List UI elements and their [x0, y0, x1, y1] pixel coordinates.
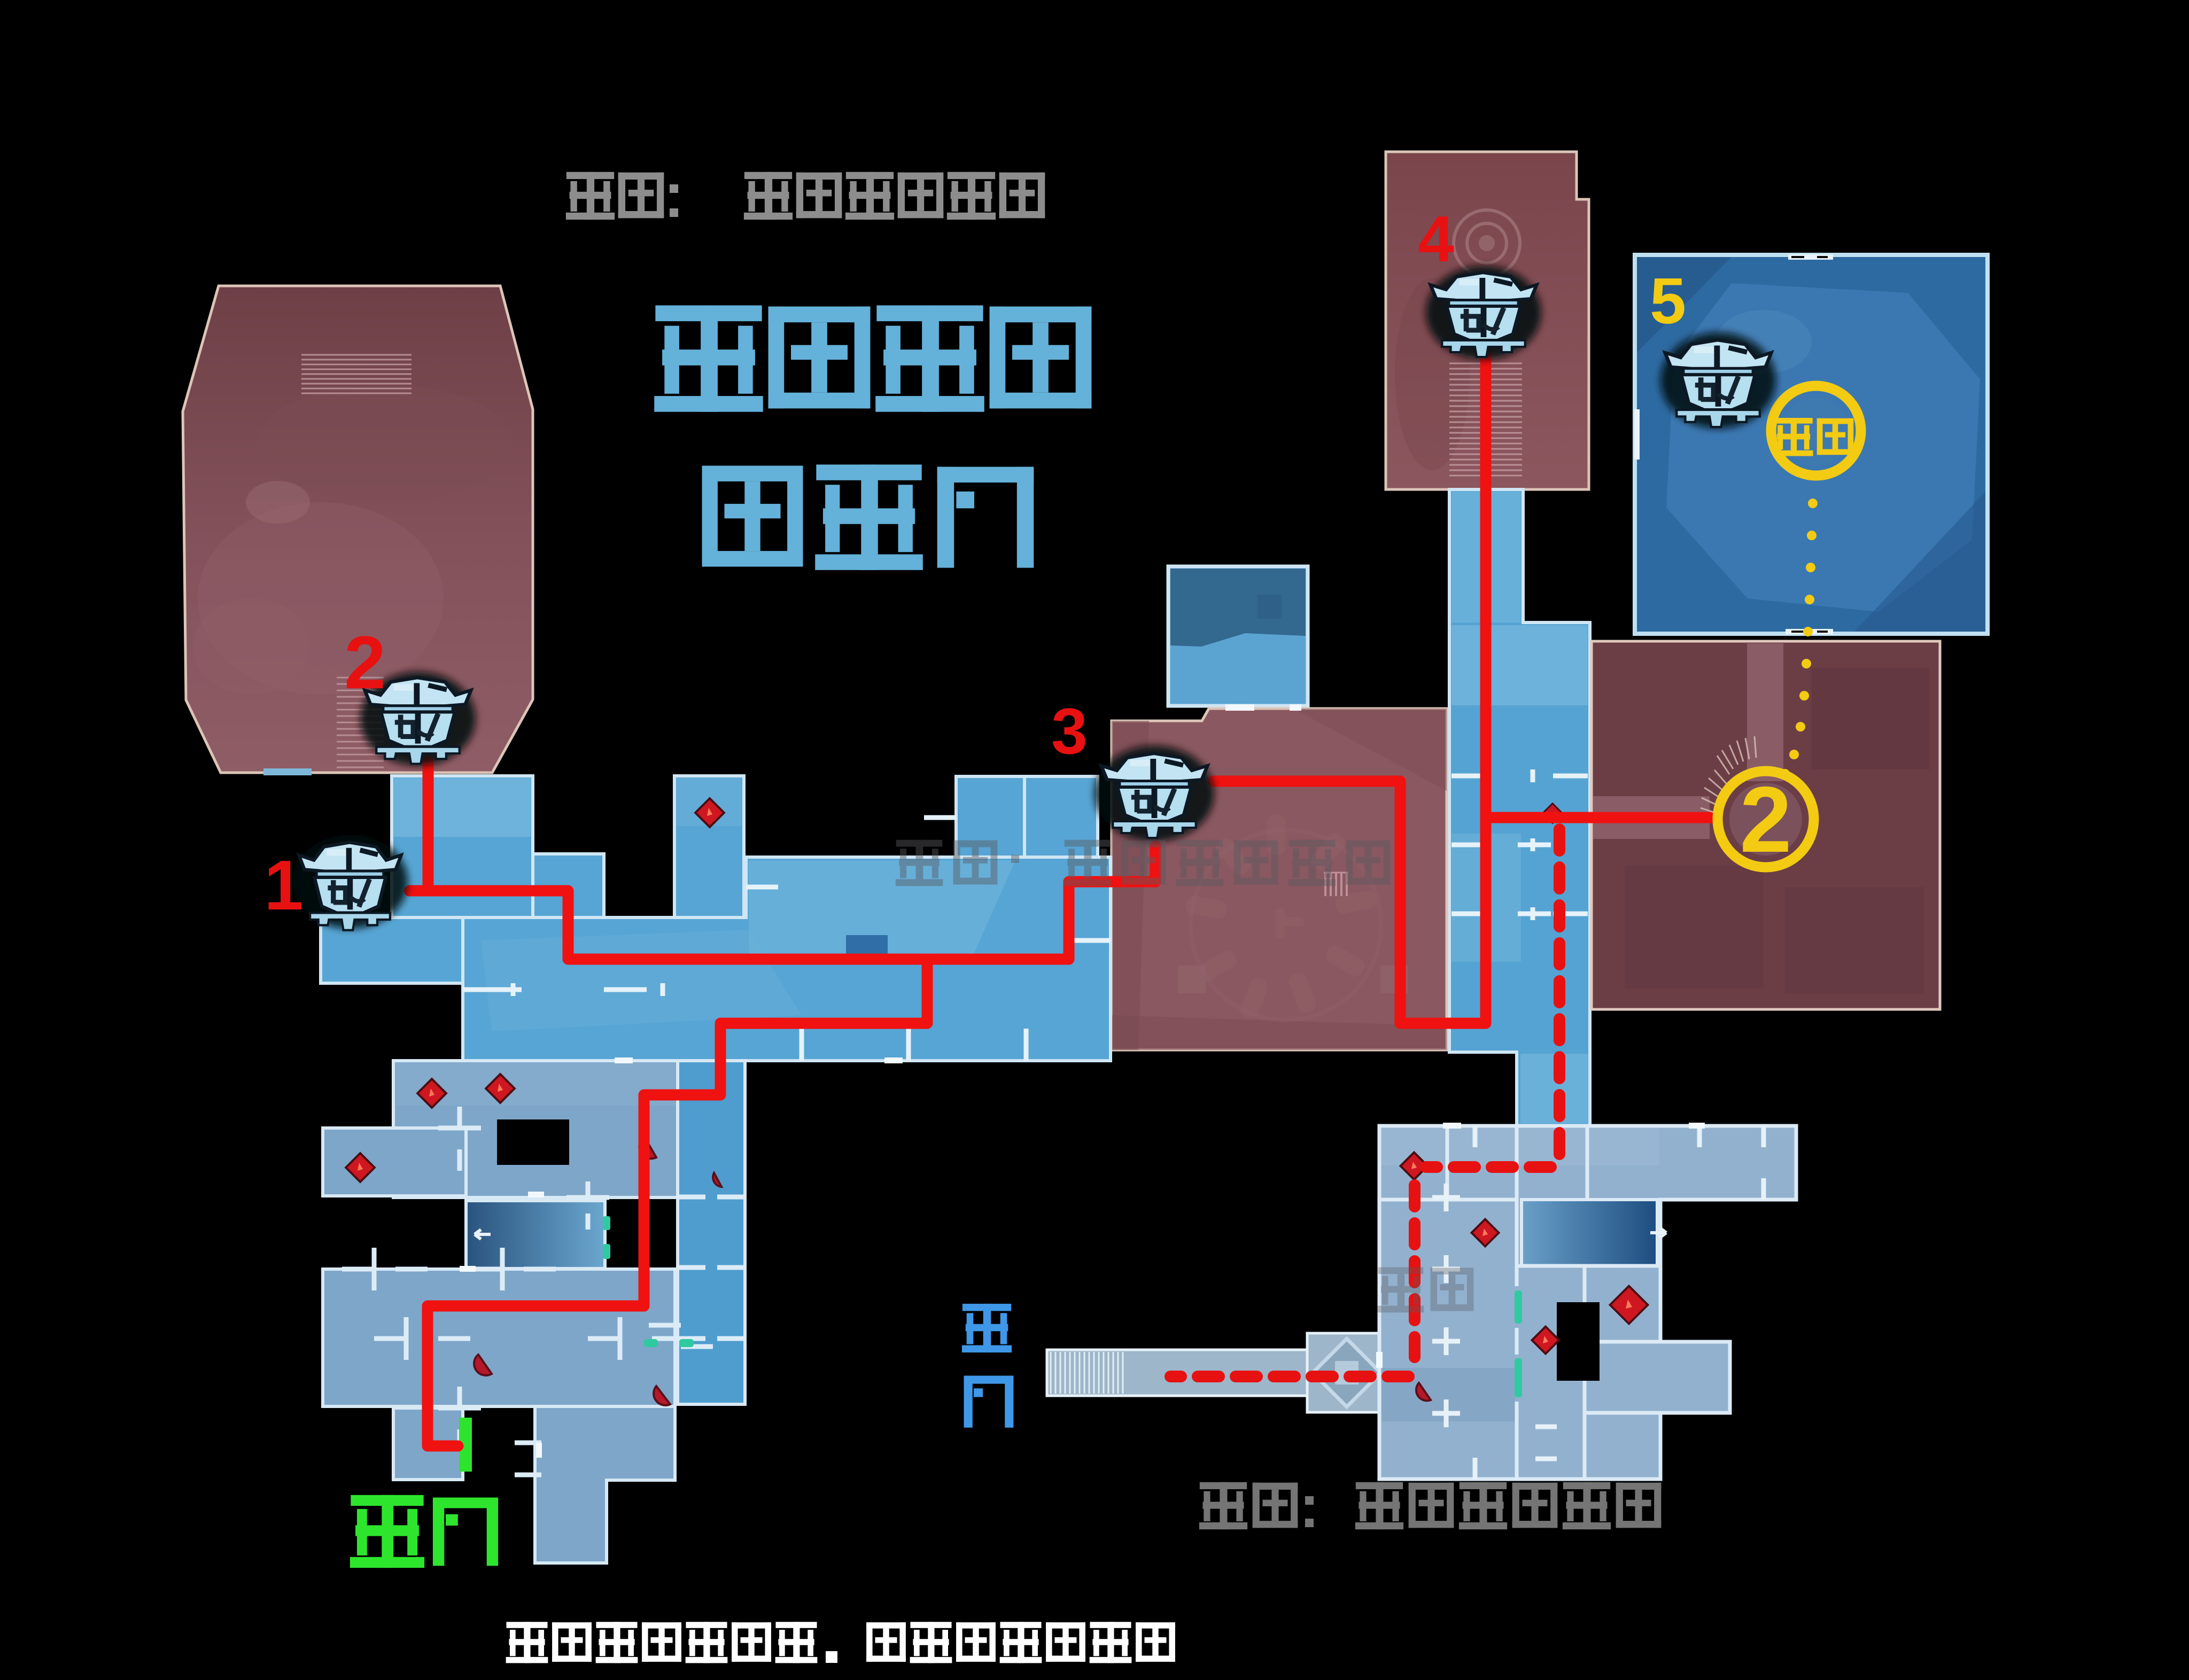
svg-text:2: 2	[344, 620, 386, 704]
svg-text:2: 2	[1740, 768, 1791, 872]
svg-text:3: 3	[1051, 695, 1088, 767]
svg-text:5: 5	[1650, 265, 1686, 337]
svg-text:1: 1	[264, 846, 303, 924]
svg-text:4: 4	[1418, 203, 1454, 275]
